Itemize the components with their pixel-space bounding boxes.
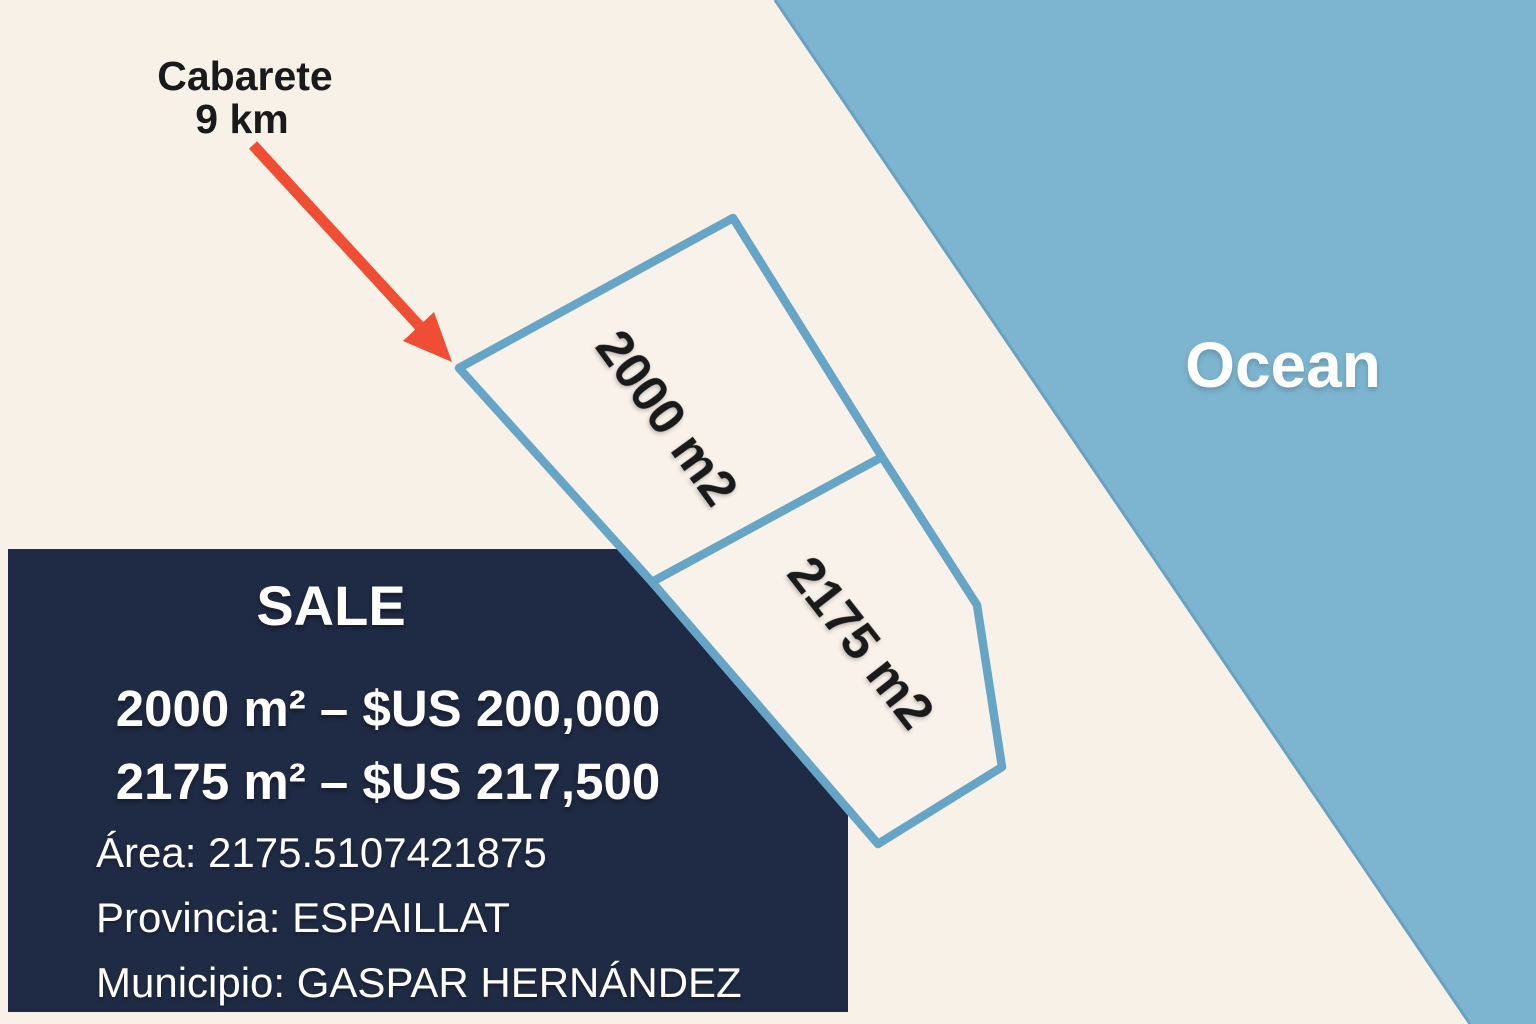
coastline — [775, 0, 1470, 1024]
cabarete-distance-label: 9 km — [195, 96, 288, 142]
sale-info-panel: SALE 2000 m² – $US 200,000 2175 m² – $US… — [8, 549, 848, 1012]
ocean-label: Ocean — [1185, 329, 1381, 401]
area-detail: Área: 2175.5107421875 — [96, 829, 547, 877]
provincia-detail: Provincia: ESPAILLAT — [96, 894, 510, 942]
parcel-2000-boundary — [459, 218, 882, 582]
sale-title: SALE — [8, 573, 654, 638]
distance-arrow-shaft — [253, 145, 424, 331]
price-line-2175: 2175 m² – $US 217,500 — [8, 752, 768, 811]
price-line-2000: 2000 m² – $US 200,000 — [8, 679, 768, 738]
distance-arrow-head — [403, 312, 452, 362]
land-plot-listing-map: SALE 2000 m² – $US 200,000 2175 m² – $US… — [0, 0, 1536, 1024]
parcel-2000-label: 2000 m2 — [585, 319, 749, 515]
ocean-area — [775, 0, 1536, 1024]
municipio-detail: Municipio: GASPAR HERNÁNDEZ — [96, 959, 742, 1007]
cabarete-label: Cabarete — [157, 53, 332, 99]
